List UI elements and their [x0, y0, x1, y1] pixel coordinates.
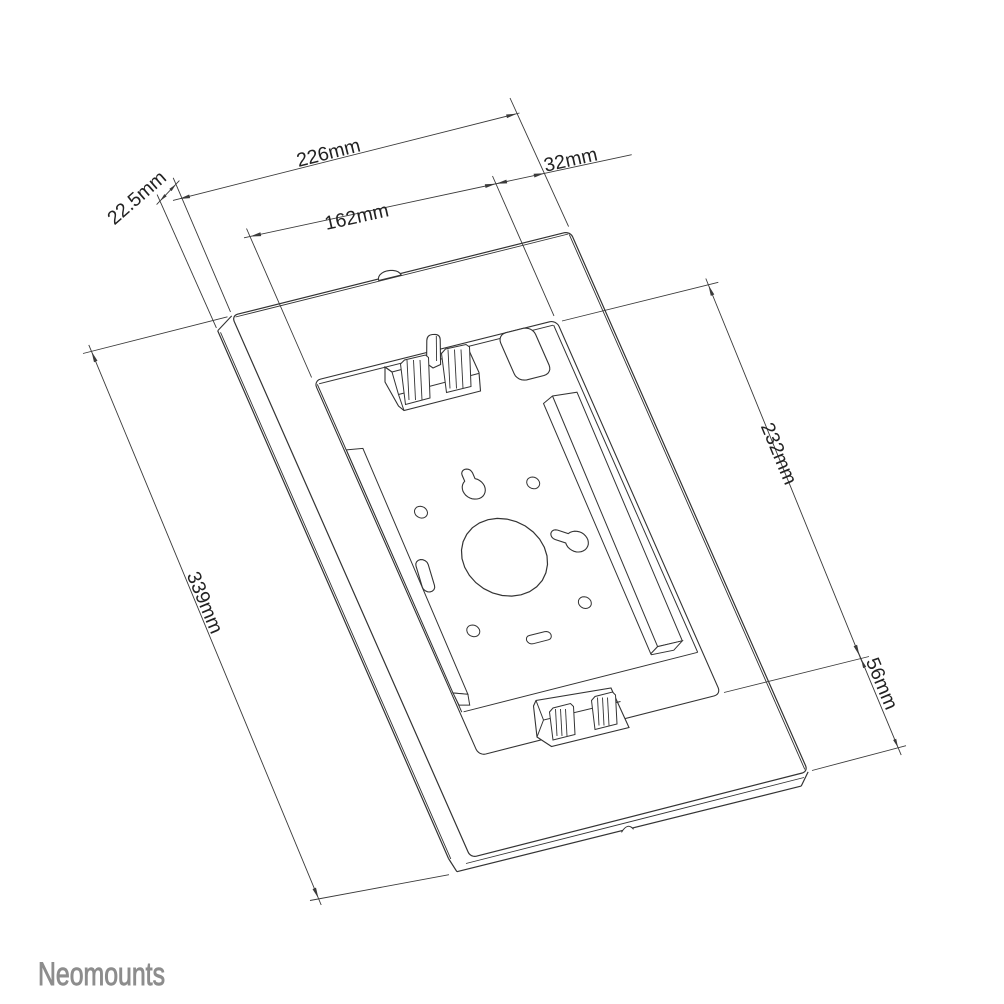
- svg-text:Neomounts: Neomounts: [38, 956, 165, 992]
